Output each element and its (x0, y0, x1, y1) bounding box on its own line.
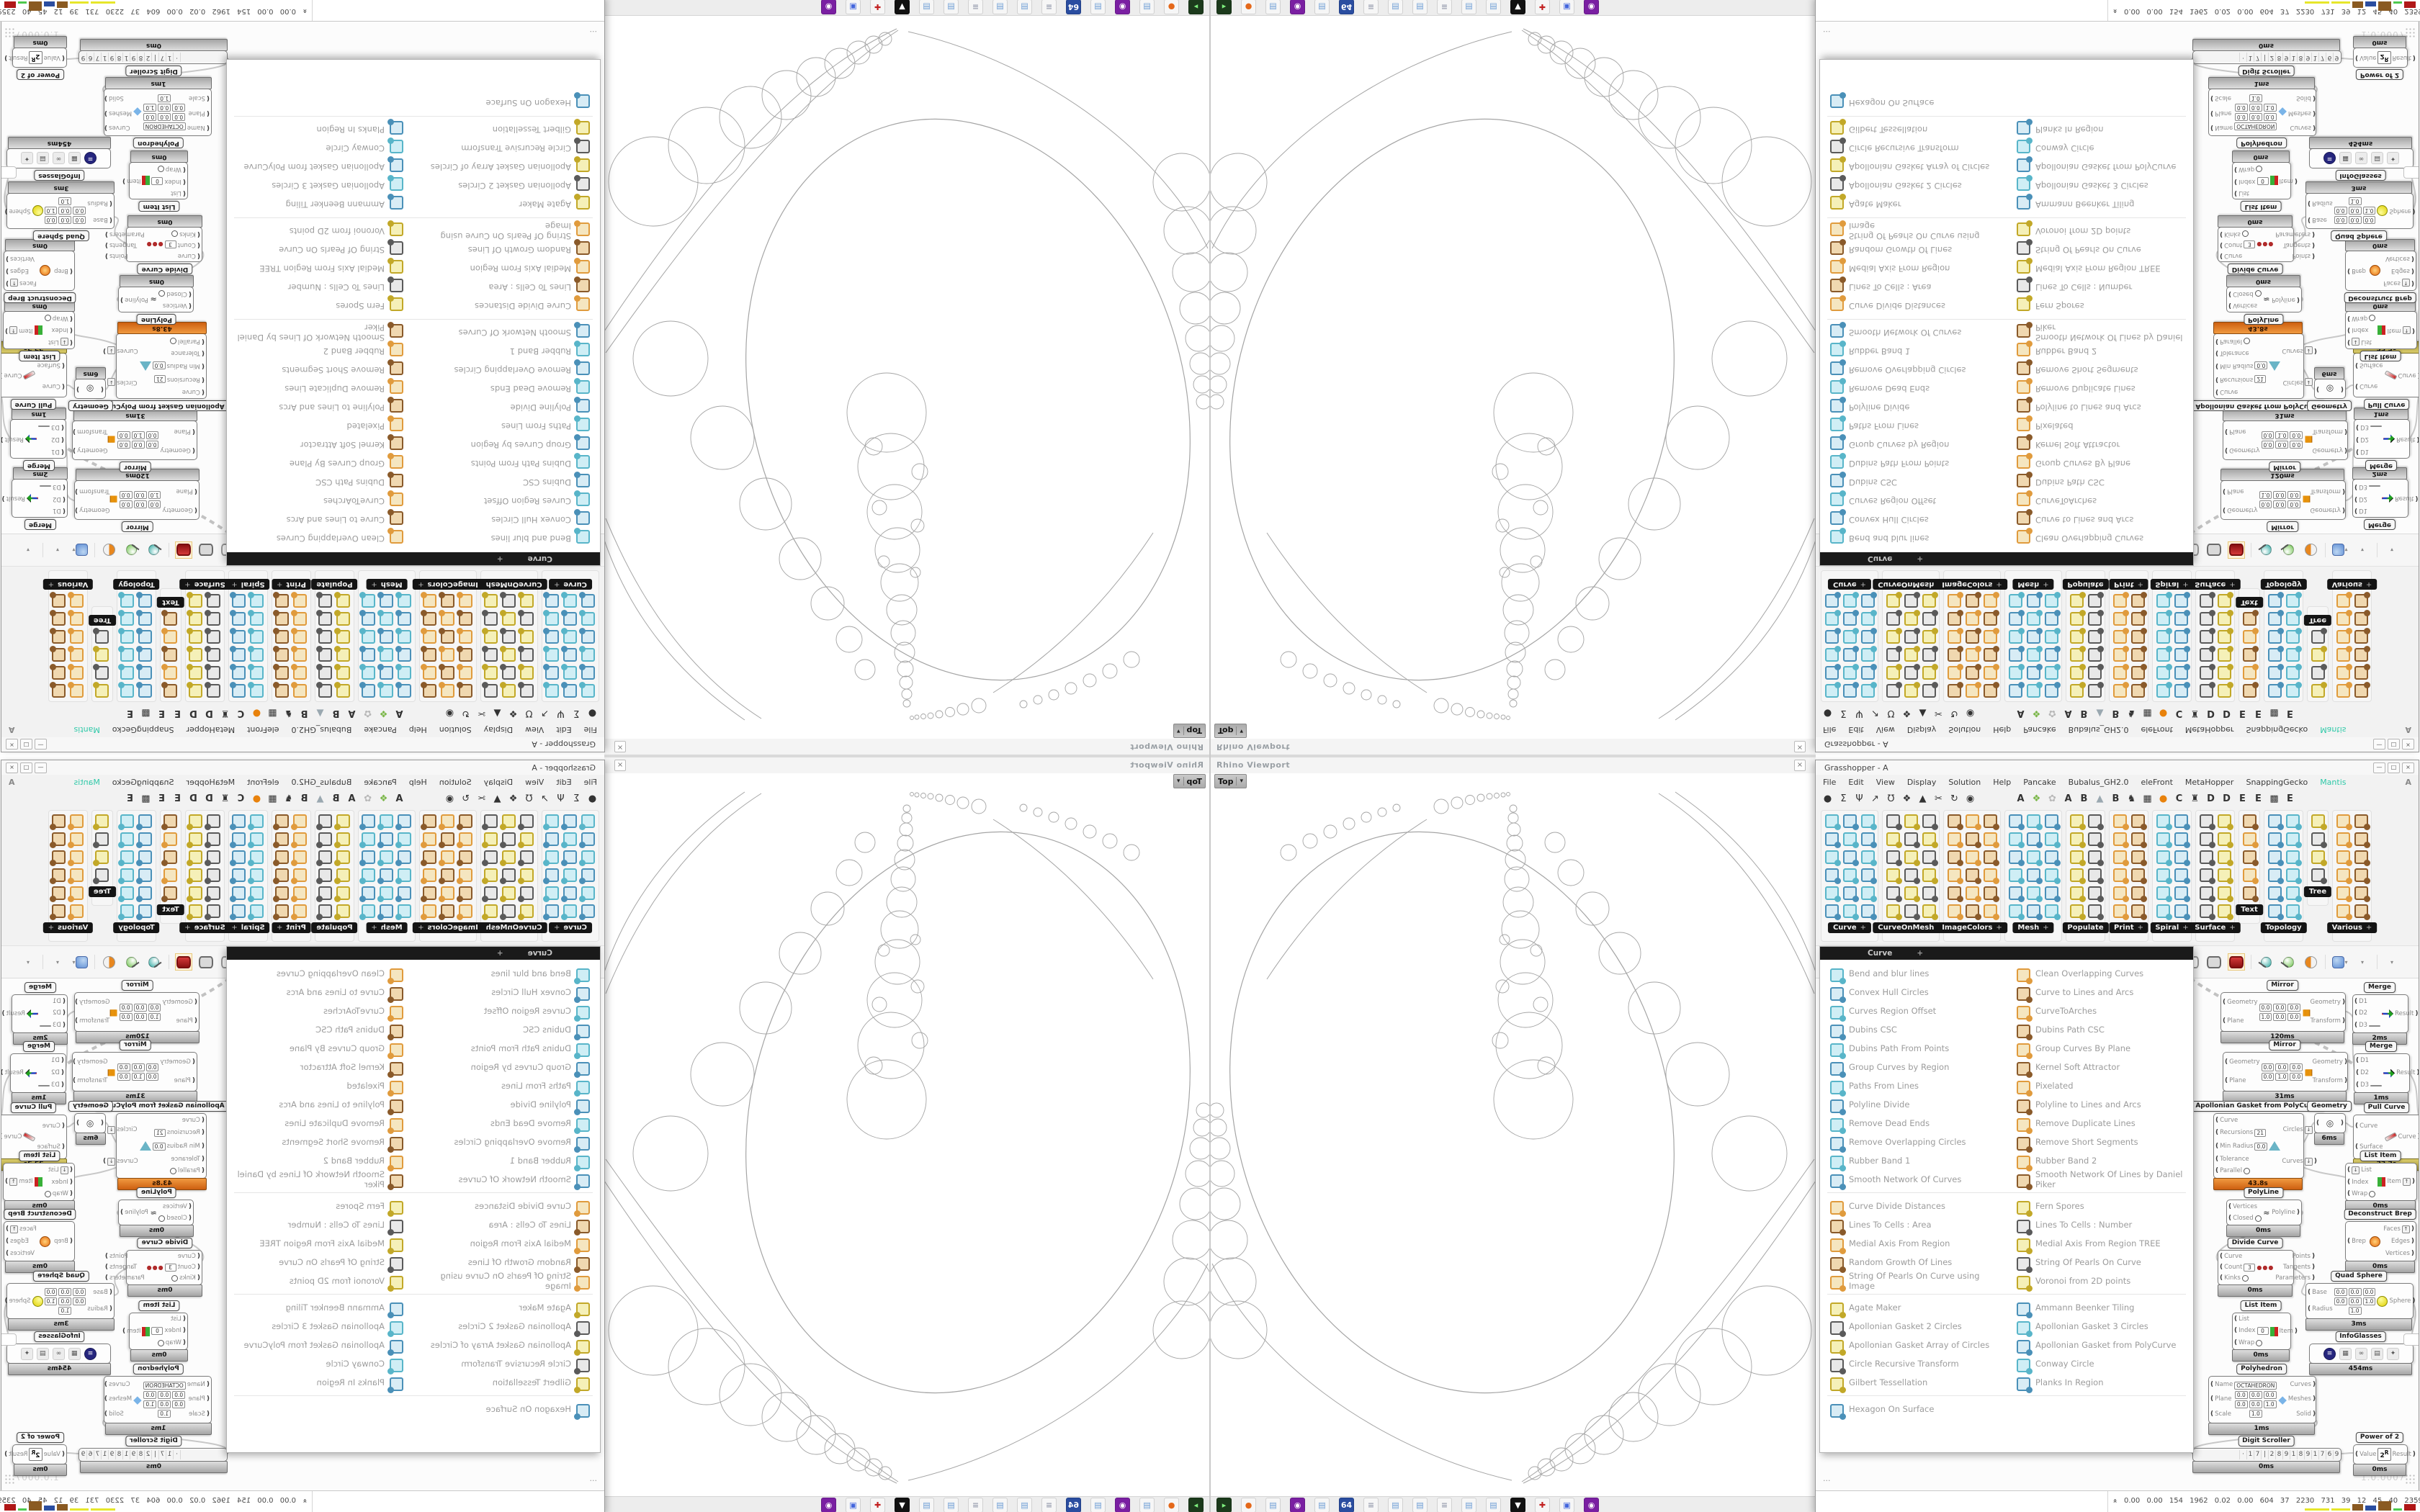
close-button[interactable]: × (2402, 762, 2414, 773)
component-icon[interactable] (458, 849, 474, 865)
input-pin-d1[interactable]: (D1 (2356, 1058, 2382, 1064)
component-icon[interactable] (1946, 867, 1962, 883)
component-icon[interactable] (501, 611, 517, 627)
node-label-merge[interactable]: Merge (2364, 982, 2396, 993)
node-power-of-2[interactable]: (Value2RResult) (2353, 48, 2408, 68)
component-icon[interactable] (1842, 813, 1857, 829)
component-icon[interactable] (1824, 885, 1839, 901)
category-tab-7[interactable]: ✂ (1934, 793, 1943, 804)
component-icon[interactable] (458, 867, 474, 883)
node-label-polyline[interactable]: PolyLine (2244, 314, 2283, 325)
input-pin-min-radius[interactable]: (Min Radius0.0 (153, 1143, 205, 1151)
ribbon-group-label-tree[interactable]: Tree (89, 615, 116, 626)
node-label-power-of-2[interactable]: Power of 2 (2356, 1432, 2403, 1443)
output-pin-item[interactable]: Item↑) (2388, 326, 2415, 334)
output-pin-points[interactable]: Points) (105, 1254, 128, 1260)
node-polyhedron[interactable]: (Name(Plane(ScaleOCTAHEDRON0.00.00.00.00… (2208, 1376, 2316, 1423)
node-label-geometry[interactable]: Geometry (68, 400, 113, 411)
component-icon[interactable] (1921, 849, 1937, 865)
output-pin-curves[interactable]: Curves↓) (103, 346, 138, 354)
category-tab-24[interactable]: E (2238, 708, 2247, 719)
chevron-down-icon[interactable]: ▾ (2344, 547, 2347, 554)
input-pin-d1[interactable]: (D1 (40, 507, 66, 513)
node-label-deconstruct-brep[interactable]: Deconstruct Brep (4, 292, 76, 303)
component-icon[interactable] (397, 665, 413, 681)
component-icon[interactable] (292, 611, 308, 627)
input-pin-list[interactable]: (↓List (2347, 338, 2375, 346)
menu-item-dubins-path-from-points[interactable]: Dubins Path From Points (1820, 1039, 2007, 1058)
component-icon[interactable] (231, 867, 247, 883)
node-mirror[interactable]: (Geometry(Plane0.00.00.01.00.00.0▮▮Geome… (2220, 480, 2346, 520)
menu-item-lines-to-cells-number[interactable]: Lines To Cells : Number (227, 278, 413, 297)
component-icon[interactable] (69, 683, 85, 699)
menu-item-rubber-band-2[interactable]: Rubber Band 2 (2007, 342, 2193, 361)
component-icon[interactable] (1885, 813, 1901, 829)
component-icon[interactable] (249, 683, 265, 699)
output-pin-result[interactable]: Result) (4, 55, 27, 61)
close-button[interactable]: × (2402, 739, 2414, 750)
menu-item-mantis[interactable]: Mantis (2320, 725, 2346, 734)
component-icon[interactable] (397, 593, 413, 609)
input-pin-recursions[interactable]: (Recursions21 (153, 1129, 205, 1137)
input-pin-name[interactable]: (Name (2210, 1382, 2233, 1388)
input-pin-plane[interactable]: (Plane (162, 487, 197, 494)
component-icon[interactable] (249, 903, 265, 919)
component-icon[interactable] (318, 611, 333, 627)
component-icon[interactable] (2130, 683, 2146, 699)
component-icon[interactable] (1860, 867, 1875, 883)
node-deconstruct-brep[interactable]: (BrepFaces↑)Edges)Vertices) (2345, 1221, 2416, 1261)
output-pin-curve[interactable]: Curve) (2398, 1134, 2419, 1140)
output-pin-edges[interactable]: Edges) (2391, 1238, 2414, 1245)
component-icon[interactable] (188, 683, 204, 699)
category-tab-0[interactable]: ● (588, 793, 597, 804)
component-icon[interactable] (1860, 629, 1875, 645)
output-pin-points[interactable]: Points) (2292, 252, 2315, 258)
input-pin-kinks[interactable]: (Kinks (165, 1275, 200, 1282)
component-icon[interactable] (138, 885, 153, 901)
taskbar-icon-notepad[interactable]: ▤ (992, 1498, 1008, 1512)
component-icon[interactable] (138, 611, 153, 627)
component-icon[interactable] (1964, 885, 1980, 901)
component-icon[interactable] (2267, 813, 2282, 829)
menu-item-group-curves-by-plane[interactable]: Group Curves By Plane (2007, 1039, 2193, 1058)
input-pin-brep[interactable]: (Brep (2347, 268, 2366, 274)
menu-item-clean-overlapping-curves[interactable]: Clean Overlapping Curves (2007, 964, 2193, 983)
node-infoglasses[interactable]: ≡▦∞▤✦ (2309, 1344, 2414, 1364)
output-pin-curves[interactable]: Curves↓) (2282, 1158, 2317, 1166)
component-icon[interactable] (1860, 831, 1875, 847)
input-pin-d1[interactable]: (D1 (2354, 507, 2380, 513)
component-icon[interactable] (1903, 683, 1919, 699)
menu-item-paths-from-lines[interactable]: Paths From Lines (413, 417, 600, 436)
menu-item-pancake[interactable]: Pancake (2023, 725, 2056, 734)
category-tab-2[interactable]: Ψ (1855, 793, 1864, 804)
category-tab-21[interactable]: ♜ (2190, 793, 2200, 804)
input-pin-geometry[interactable]: (Geometry (2225, 1059, 2260, 1066)
component-icon[interactable] (2069, 593, 2084, 609)
input-pin-min-radius[interactable]: (Min Radius0.0 (2215, 361, 2267, 369)
component-icon[interactable] (1903, 831, 1919, 847)
component-icon[interactable] (501, 885, 517, 901)
component-icon[interactable] (458, 831, 474, 847)
node-mirror[interactable]: (Geometry(Plane0.00.00.01.00.00.0▮▮Geome… (2220, 992, 2346, 1032)
category-tab-4[interactable]: ℧ (1886, 708, 1896, 719)
component-icon[interactable] (1946, 813, 1962, 829)
node-merge[interactable]: (D1(D2(D3 Result) (2352, 479, 2408, 518)
component-icon[interactable] (581, 629, 596, 645)
node-label-mirror[interactable]: Mirror (122, 521, 153, 532)
component-icon[interactable] (292, 629, 308, 645)
component-icon[interactable] (563, 647, 578, 663)
category-tab-7[interactable]: ✂ (1934, 708, 1943, 719)
component-icon[interactable] (2353, 867, 2369, 883)
component-icon[interactable] (1824, 867, 1839, 883)
component-icon[interactable] (188, 813, 204, 829)
component-icon[interactable] (501, 683, 517, 699)
component-icon[interactable] (544, 593, 560, 609)
component-icon[interactable] (397, 849, 413, 865)
component-icon[interactable] (2241, 629, 2257, 645)
component-icon[interactable] (69, 813, 85, 829)
menu-item-apollonian-gasket-2-circles[interactable]: Apollonian Gasket 2 Circles (1820, 176, 2007, 195)
output-pin-geometry[interactable]: Geometry) (73, 1059, 108, 1066)
component-icon[interactable] (581, 647, 596, 663)
component-icon[interactable] (2087, 593, 2102, 609)
output-pin-polyline[interactable]: Polyline) (2272, 1210, 2300, 1216)
component-icon[interactable] (1824, 683, 1839, 699)
component-icon[interactable] (361, 629, 377, 645)
input-pin-d2[interactable]: (D2 (40, 495, 66, 502)
component-icon[interactable] (563, 885, 578, 901)
node-merge[interactable]: (D1(D2(D3 Result) (10, 419, 66, 459)
output-pin-tangents[interactable]: Tangents) (105, 1264, 137, 1271)
menu-item-group-curves-by-plane[interactable]: Group Curves By Plane (227, 1039, 413, 1058)
input-pin-curve[interactable]: (Curve (37, 382, 65, 389)
category-tab-25[interactable]: E (157, 708, 166, 719)
ribbon-group-label-imagecolors[interactable]: ImageColors+ (1937, 579, 2007, 590)
component-icon[interactable] (501, 593, 517, 609)
component-icon[interactable] (2173, 593, 2189, 609)
component-icon[interactable] (458, 611, 474, 627)
component-icon[interactable] (274, 611, 290, 627)
component-icon[interactable] (206, 831, 222, 847)
menu-item-remove-duplicate-lines[interactable]: Remove Duplicate Lines (227, 1114, 413, 1133)
component-icon[interactable] (2087, 665, 2102, 681)
node-power-of-2[interactable]: (Value2RResult) (2353, 1444, 2408, 1464)
menu-item-paths-from-lines[interactable]: Paths From Lines (1820, 417, 2007, 436)
component-icon[interactable] (138, 831, 153, 847)
category-tab-5[interactable]: ❖ (508, 793, 518, 804)
output-pin-sphere[interactable]: Sphere) (2389, 208, 2415, 215)
node-merge[interactable]: (D1(D2(D3 Result) (12, 479, 68, 518)
preview-pin-icon[interactable] (2283, 545, 2294, 556)
taskbar-icon-notepad[interactable]: ▤ (1388, 0, 1403, 15)
menu-item-curvetoarches[interactable]: CurveToArches (2007, 492, 2193, 510)
input-pin-plane[interactable]: (Plane (160, 428, 195, 434)
category-tab-2[interactable]: Ψ (556, 793, 565, 804)
node-quad-sphere[interactable]: (Base(Radius0.00.00.00.00.01.01.0Sphere) (6, 1283, 115, 1319)
component-icon[interactable] (1964, 813, 1980, 829)
input-pin-list[interactable]: (List (2234, 1316, 2269, 1323)
component-icon[interactable] (51, 665, 67, 681)
node-label-list-item[interactable]: List Item (139, 1300, 180, 1311)
category-tab-3[interactable]: ↗ (1870, 793, 1880, 804)
component-icon[interactable] (361, 885, 377, 901)
component-icon[interactable] (138, 665, 153, 681)
component-icon[interactable] (581, 611, 596, 627)
component-icon[interactable] (69, 593, 85, 609)
component-icon[interactable] (544, 903, 560, 919)
component-icon[interactable] (1885, 683, 1901, 699)
component-icon[interactable] (581, 867, 596, 883)
taskbar-icon-notepad[interactable]: ▤ (1486, 0, 1501, 15)
menu-item-file[interactable]: File (1823, 778, 1836, 787)
component-icon[interactable] (1903, 813, 1919, 829)
component-icon[interactable] (2043, 647, 2059, 663)
digit-scroller-value[interactable]: ·17|2891891769 (80, 52, 226, 63)
component-icon[interactable] (2007, 665, 2023, 681)
input-pin-d3[interactable]: (D3 (2354, 1022, 2380, 1029)
component-icon[interactable] (422, 665, 438, 681)
component-icon[interactable] (519, 611, 535, 627)
input-pin-geometry[interactable]: (Geometry (2223, 506, 2258, 513)
taskbar-icon-red-app[interactable]: ✚ (1535, 1498, 1550, 1512)
menu-item-metahopper[interactable]: MetaHopper (187, 778, 236, 787)
category-tab-9[interactable]: ◉ (445, 708, 454, 719)
menu-item-string-of-pearls-on-curve-using-image[interactable]: String Of Pearls On Curve using Image (1820, 1272, 2007, 1290)
category-tab-10[interactable]: A (2016, 708, 2025, 719)
output-pin-solid[interactable]: Solid) (104, 1411, 124, 1418)
input-pin-curve[interactable]: (Curve (37, 1123, 65, 1130)
node-list-item[interactable]: (↓List(Index(WrapItem↑) (2345, 311, 2417, 349)
component-icon[interactable] (274, 593, 290, 609)
component-icon[interactable] (1860, 647, 1875, 663)
component-icon[interactable] (2130, 903, 2146, 919)
input-pin-vertices[interactable]: (Vertices (158, 302, 192, 309)
component-icon[interactable] (1964, 683, 1980, 699)
component-icon[interactable] (1903, 903, 1919, 919)
node-label-pull-curve[interactable]: Pull Curve (11, 1102, 57, 1113)
menu-item-curvetoarches[interactable]: CurveToArches (227, 1002, 413, 1020)
component-icon[interactable] (336, 885, 351, 901)
component-icon[interactable] (1842, 593, 1857, 609)
component-icon[interactable] (274, 849, 290, 865)
output-pin-polyline[interactable]: Polyline) (120, 297, 148, 303)
component-icon[interactable] (1946, 831, 1962, 847)
menu-item-snappinggecko[interactable]: SnappingGecko (112, 778, 174, 787)
taskbar-icon-terminal[interactable]: ▸ (1188, 1498, 1204, 1512)
chevron-up-icon[interactable]: » (2112, 9, 2120, 13)
category-tab-27[interactable]: E (125, 793, 135, 804)
menu-item-medial-axis-from-region[interactable]: Medial Axis From Region (1820, 1234, 2007, 1253)
component-icon[interactable] (361, 665, 377, 681)
menu-item-medial-axis-from-region[interactable]: Medial Axis From Region (413, 1234, 600, 1253)
menu-item-pixelated[interactable]: Pixelated (227, 1076, 413, 1095)
ribbon-group-label-imagecolors[interactable]: ImageColors+ (1937, 922, 2007, 933)
node-list-item[interactable]: (List(Index0(WrapItem) (129, 162, 188, 199)
menu-item-voronoi-from-2d-points[interactable]: Voronoi from 2D points (2007, 222, 2193, 240)
component-icon[interactable] (336, 683, 351, 699)
input-pin-geometry[interactable]: (Geometry (2223, 999, 2258, 1006)
node-label-list-item[interactable]: List Item (19, 1151, 60, 1161)
input-pin-kinks[interactable]: (Kinks (2220, 1275, 2255, 1282)
component-icon[interactable] (2043, 831, 2059, 847)
component-icon[interactable] (2087, 867, 2102, 883)
category-tab-0[interactable]: ● (1823, 708, 1832, 719)
menu-item-group-curves-by-plane[interactable]: Group Curves By Plane (227, 454, 413, 473)
component-icon[interactable] (544, 831, 560, 847)
input-pin-d1[interactable]: (D1 (38, 1058, 64, 1064)
component-icon[interactable] (519, 867, 535, 883)
component-icon[interactable] (1842, 885, 1857, 901)
component-icon[interactable] (2155, 885, 2171, 901)
component-icon[interactable] (483, 903, 499, 919)
component-icon[interactable] (1946, 903, 1962, 919)
component-icon[interactable] (69, 665, 85, 681)
menu-item-edit[interactable]: Edit (556, 725, 571, 734)
ribbon-group-label-curve[interactable]: Curve+ (549, 579, 592, 590)
component-icon[interactable] (1921, 665, 1937, 681)
menu-item-conway-circle[interactable]: Conway Circle (227, 1354, 413, 1373)
category-tab-13[interactable]: A (2063, 793, 2073, 804)
component-icon[interactable] (440, 885, 456, 901)
ribbon-group-label-topology[interactable]: Topology (113, 579, 159, 590)
menu-item-curvetoarches[interactable]: CurveToArches (2007, 1002, 2193, 1020)
component-icon[interactable] (2112, 611, 2128, 627)
component-icon[interactable] (138, 647, 153, 663)
component-icon[interactable] (2267, 849, 2282, 865)
minimize-button[interactable]: — (35, 739, 47, 750)
component-icon[interactable] (1885, 885, 1901, 901)
output-pin-parameters[interactable]: Parameters) (2275, 1275, 2315, 1282)
component-icon[interactable] (440, 647, 456, 663)
preview-pin-icon[interactable] (2261, 957, 2272, 968)
grasshopper-titlebar[interactable]: Grasshopper - A —□× (1816, 737, 2419, 752)
output-pin-transform[interactable]: Transform) (2311, 487, 2345, 494)
component-icon[interactable] (2112, 867, 2128, 883)
component-icon[interactable] (120, 885, 135, 901)
component-icon[interactable] (69, 903, 85, 919)
input-pin-d3[interactable]: (D3 (2356, 423, 2382, 430)
component-icon[interactable] (292, 647, 308, 663)
component-icon[interactable] (51, 629, 67, 645)
category-tab-14[interactable]: B (2079, 708, 2089, 719)
taskbar-icon-notepad[interactable]: ▤ (1139, 1498, 1155, 1512)
component-icon[interactable] (2198, 831, 2214, 847)
component-icon[interactable] (2130, 611, 2146, 627)
input-pin-geometry[interactable]: (Geometry (160, 1059, 195, 1066)
input-pin-vertices[interactable]: (Vertices (2228, 1204, 2262, 1210)
input-pin-curve[interactable]: (Curve (165, 252, 200, 258)
menu-item-remove-short-segments[interactable]: Remove Short Segments (227, 361, 413, 379)
ribbon-group-label-various[interactable]: Various+ (2327, 579, 2378, 590)
node-divide-curve[interactable]: (Curve(Count3(Kinks●●●Points)Tangents)Pa… (126, 227, 202, 262)
menu-item-remove-short-segments[interactable]: Remove Short Segments (227, 1133, 413, 1151)
component-icon[interactable] (2353, 647, 2369, 663)
component-icon[interactable] (2043, 611, 2059, 627)
input-pin-wrap[interactable]: (Wrap (45, 1191, 73, 1197)
component-icon[interactable] (1860, 611, 1875, 627)
menu-item-apollonian-gasket-array-of-circles[interactable]: Apollonian Gasket Array of Circles (413, 1336, 600, 1354)
component-icon[interactable] (2043, 665, 2059, 681)
menu-item-random-growth-of-lines[interactable]: Random Growth Of Lines (413, 1253, 600, 1272)
component-icon[interactable] (1964, 593, 1980, 609)
menu-item-curve-divide-distances[interactable]: Curve Divide Distances (1820, 297, 2007, 315)
menu-item-kernel-soft-attractor[interactable]: Kernel Soft Attractor (2007, 1058, 2193, 1076)
node-label-merge[interactable]: Merge (23, 460, 55, 471)
component-icon[interactable] (2112, 849, 2128, 865)
component-icon[interactable] (458, 683, 474, 699)
input-pin-list[interactable]: (List (151, 189, 186, 196)
node-label-merge[interactable]: Merge (24, 519, 56, 530)
menu-item-solution[interactable]: Solution (439, 778, 472, 787)
component-icon[interactable] (2025, 593, 2041, 609)
node-label-power-of-2[interactable]: Power of 2 (2356, 69, 2403, 80)
menu-item-gilbert-tessellation[interactable]: Gilbert Tessellation (413, 120, 600, 139)
menu-item-rubber-band-2[interactable]: Rubber Band 2 (227, 342, 413, 361)
menu-item-remove-dead-ends[interactable]: Remove Dead Ends (1820, 379, 2007, 398)
component-icon[interactable] (1964, 831, 1980, 847)
node-label-list-item[interactable]: List Item (139, 201, 180, 212)
component-icon[interactable] (458, 629, 474, 645)
component-icon[interactable] (2087, 849, 2102, 865)
viewport-close-icon[interactable]: × (614, 760, 626, 771)
node-label-list-item[interactable]: List Item (2360, 1151, 2401, 1161)
component-icon[interactable] (2043, 867, 2059, 883)
node-list-item[interactable]: (↓List(Index(WrapItem↑) (3, 1163, 75, 1201)
taskbar-icon-notepad[interactable]: ▤ (1017, 0, 1032, 15)
node-label-divide-curve[interactable]: Divide Curve (138, 1238, 193, 1248)
taskbar-icon-terminal[interactable]: ▸ (1188, 0, 1204, 15)
taskbar-icon-window-app[interactable]: ▣ (1559, 0, 1574, 15)
component-icon[interactable] (361, 867, 377, 883)
component-icon[interactable] (2155, 903, 2171, 919)
input-pin-name[interactable]: (Name (187, 1382, 210, 1388)
component-icon[interactable] (2025, 849, 2041, 865)
node-label-deconstruct-brep[interactable]: Deconstruct Brep (2344, 1209, 2416, 1220)
category-tab-16[interactable]: B (300, 793, 309, 804)
menu-item-remove-duplicate-lines[interactable]: Remove Duplicate Lines (2007, 379, 2193, 398)
component-icon[interactable] (361, 647, 377, 663)
ribbon-group-label-surface[interactable]: Surface+ (179, 922, 230, 933)
output-pin-meshes[interactable]: Meshes) (104, 1396, 132, 1403)
component-icon[interactable] (2285, 885, 2300, 901)
menu-item-help[interactable]: Help (409, 725, 427, 734)
category-tab-15[interactable]: ▲ (315, 793, 325, 804)
component-icon[interactable] (563, 831, 578, 847)
component-icon[interactable] (51, 831, 67, 847)
component-icon[interactable] (1982, 831, 1998, 847)
menu-item-kernel-soft-attractor[interactable]: Kernel Soft Attractor (227, 436, 413, 454)
component-icon[interactable] (2025, 885, 2041, 901)
input-pin-geometry[interactable]: (Geometry (162, 999, 197, 1006)
component-icon[interactable] (379, 831, 395, 847)
node-infoglasses[interactable]: ≡▦∞▤✦ (6, 1344, 111, 1364)
category-tab-7[interactable]: ✂ (477, 793, 486, 804)
input-pin-name[interactable]: (Name (2210, 124, 2233, 130)
component-icon[interactable] (2043, 593, 2059, 609)
output-pin-curves[interactable]: Curves) (104, 1382, 130, 1388)
taskbar-icon-script[interactable]: ≡ (1363, 0, 1379, 15)
component-icon[interactable] (318, 629, 333, 645)
component-icon[interactable] (2087, 903, 2102, 919)
taskbar-icon-notepad[interactable]: ▤ (1265, 0, 1281, 15)
ribbon-group-label-mesh[interactable]: Mesh+ (2012, 922, 2053, 933)
output-pin-meshes[interactable]: Meshes) (2288, 1396, 2316, 1403)
taskbar-icon-browser[interactable]: ● (1164, 1498, 1179, 1512)
menu-item-help[interactable]: Help (409, 778, 427, 787)
